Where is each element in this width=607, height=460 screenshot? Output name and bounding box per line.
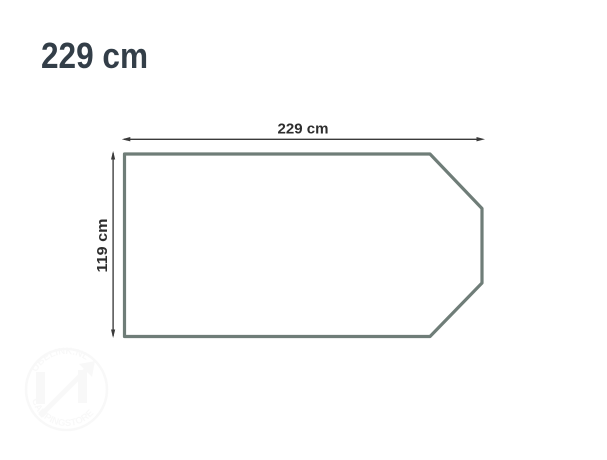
svg-text:229 cm: 229 cm	[41, 35, 148, 76]
svg-text:119 cm: 119 cm	[95, 219, 111, 273]
svg-text:229 cm: 229 cm	[278, 122, 329, 138]
